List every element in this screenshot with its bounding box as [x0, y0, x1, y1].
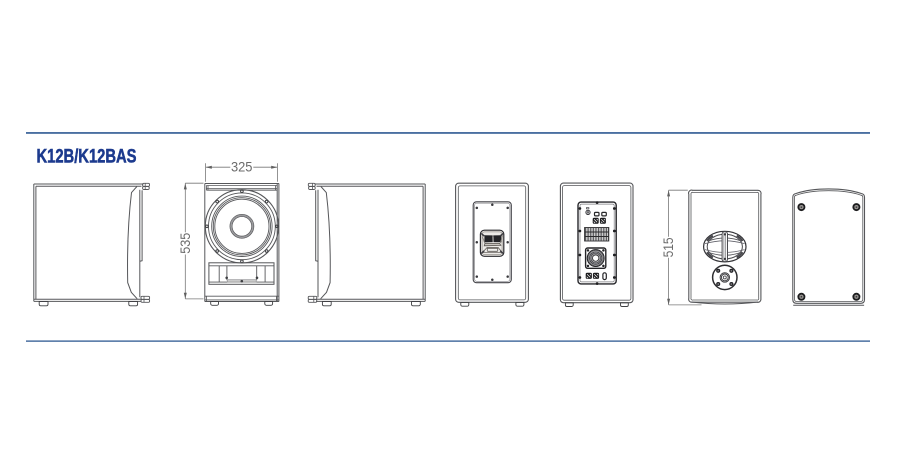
svg-text:K12B/K12BAS: K12B/K12BAS	[37, 146, 137, 167]
svg-text:515: 515	[661, 237, 676, 257]
svg-text:535: 535	[178, 233, 193, 254]
svg-text:325: 325	[231, 160, 253, 175]
